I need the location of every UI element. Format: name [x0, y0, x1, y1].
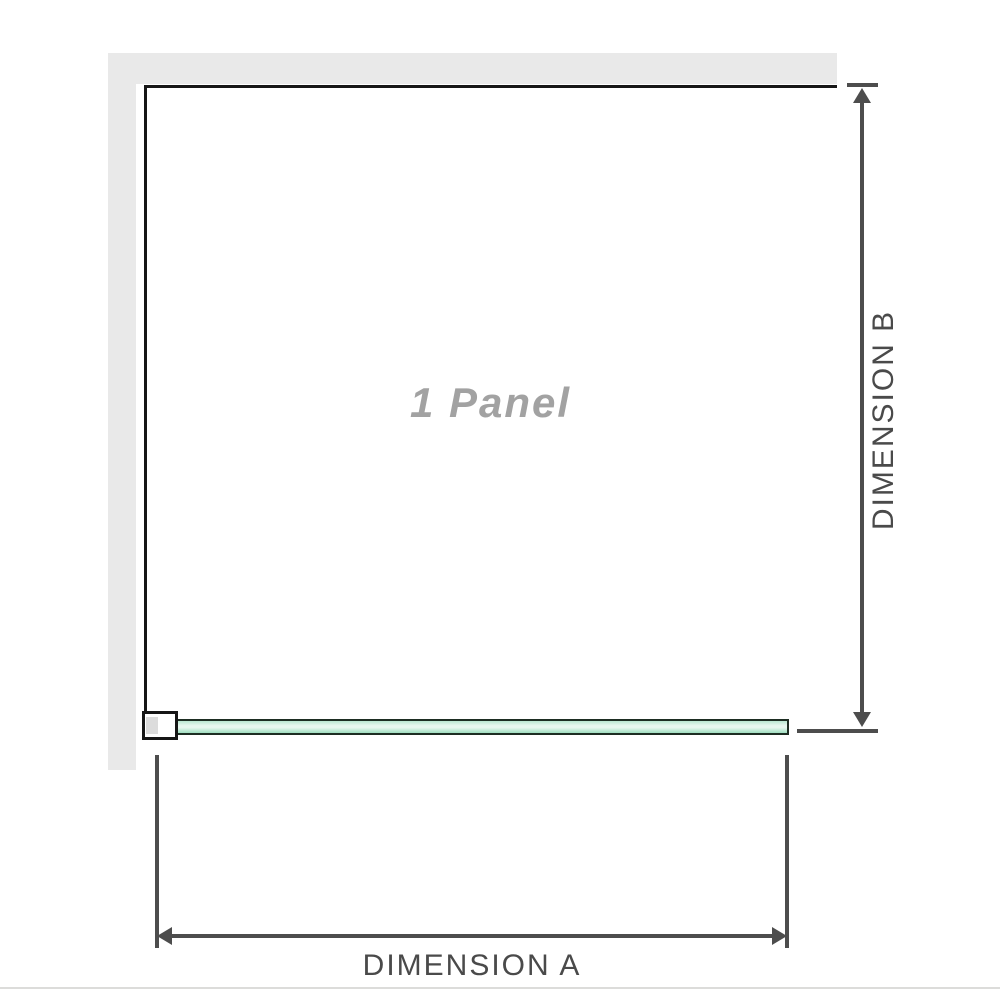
dimension-b-label: DIMENSION B — [867, 310, 901, 530]
page-bottom-divider — [0, 987, 1000, 989]
wall-bracket — [142, 711, 178, 740]
wall-left — [108, 53, 136, 770]
arrow-left-icon — [157, 927, 172, 945]
arrow-up-icon — [853, 88, 871, 103]
arrow-right-icon — [772, 927, 787, 945]
bracket-pad — [146, 717, 158, 734]
dimension-a-right-extension — [785, 755, 789, 948]
panel-count-label: 1 Panel — [144, 85, 837, 721]
dimension-b-top-tick — [847, 83, 878, 87]
wall-top — [108, 53, 837, 84]
dimension-b-bottom-tick — [797, 729, 878, 733]
glass-panel — [157, 719, 789, 735]
dimension-a-line — [168, 934, 779, 938]
arrow-down-icon — [853, 712, 871, 727]
dimension-a-label: DIMENSION A — [363, 949, 582, 983]
shower-panel-diagram: 1 Panel DIMENSION B DIMENSION A — [0, 0, 1000, 1000]
dimension-a-left-extension — [155, 755, 159, 948]
dimension-b-line — [860, 100, 864, 715]
